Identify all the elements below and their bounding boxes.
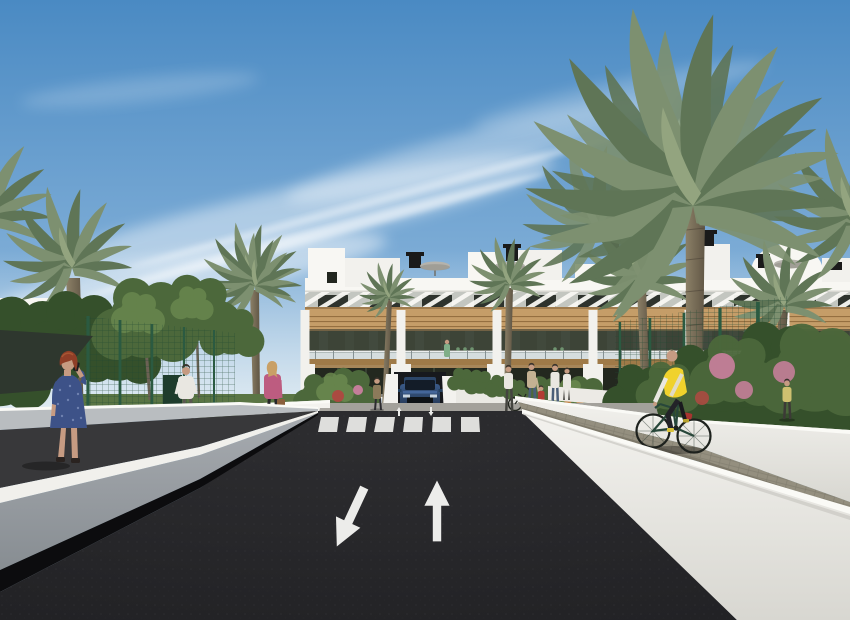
shoe	[667, 428, 674, 432]
resident-green-dress	[444, 344, 450, 357]
chimney	[409, 256, 421, 268]
red-flowers	[332, 390, 344, 402]
car-mirror	[398, 389, 402, 392]
shoe	[71, 458, 80, 463]
pink-flowers	[709, 353, 735, 379]
render-canvas	[0, 0, 850, 620]
hand	[653, 402, 657, 406]
crosswalk-stripe	[403, 417, 423, 432]
roof-vent	[327, 272, 337, 283]
head	[667, 351, 678, 362]
pink-flowers	[353, 385, 363, 395]
crosswalk-stripe	[461, 417, 480, 432]
chimney	[406, 252, 424, 256]
shoe	[56, 457, 65, 462]
car-windshield	[405, 380, 435, 390]
far-shoe	[683, 419, 689, 423]
car-mirror	[439, 389, 443, 392]
figure-shadow	[22, 462, 70, 471]
car-hood	[403, 391, 437, 394]
crank	[673, 425, 678, 430]
crosswalk-stripe	[346, 417, 367, 432]
crosswalk-stripe	[432, 417, 451, 432]
car-headlight	[430, 395, 437, 398]
red-flowers	[695, 391, 709, 405]
pink-flowers	[735, 381, 753, 399]
crosswalk-stripe	[374, 417, 395, 432]
car-headlight	[403, 395, 410, 398]
crosswalk-stripe	[318, 417, 339, 432]
scene-svg	[0, 0, 850, 620]
pink-flowers	[773, 361, 795, 383]
neck	[64, 370, 71, 376]
penthouse-box	[308, 248, 345, 287]
leg	[71, 428, 78, 459]
